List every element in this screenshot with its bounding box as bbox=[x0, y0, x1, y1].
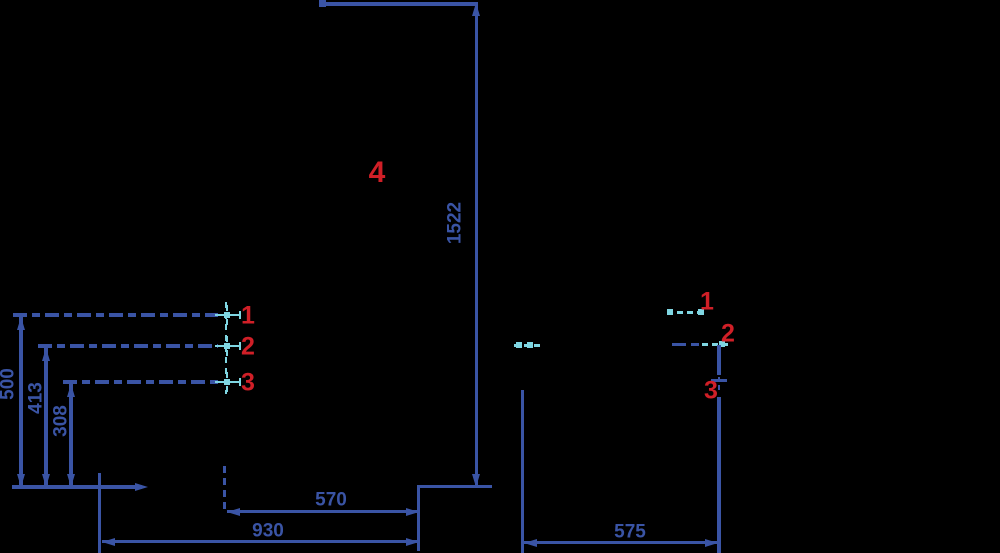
depth-arrow-right bbox=[705, 539, 718, 547]
side-port-2-label: 2 bbox=[721, 322, 735, 347]
side-port-1-square-a bbox=[667, 309, 673, 315]
side-port-1-label: 1 bbox=[700, 290, 714, 315]
side-centerline-left-square-a bbox=[516, 342, 522, 348]
side-centerline-left-square-b bbox=[527, 342, 533, 348]
depth-arrow-left bbox=[524, 539, 537, 547]
depth-extension-line bbox=[521, 390, 524, 553]
side-port-3-label: 3 bbox=[704, 379, 718, 404]
side-view: 1 2 3 575 bbox=[0, 0, 1000, 553]
side-rear-edge-upper bbox=[717, 345, 721, 375]
dimension-drawing: 1522 4 bbox=[0, 0, 1000, 553]
side-port-2-centerline-blue bbox=[672, 343, 702, 346]
depth-dim-text: 575 bbox=[614, 523, 646, 542]
side-rear-edge-lower bbox=[717, 397, 721, 553]
side-rear-edge-dash-b bbox=[718, 385, 720, 390]
